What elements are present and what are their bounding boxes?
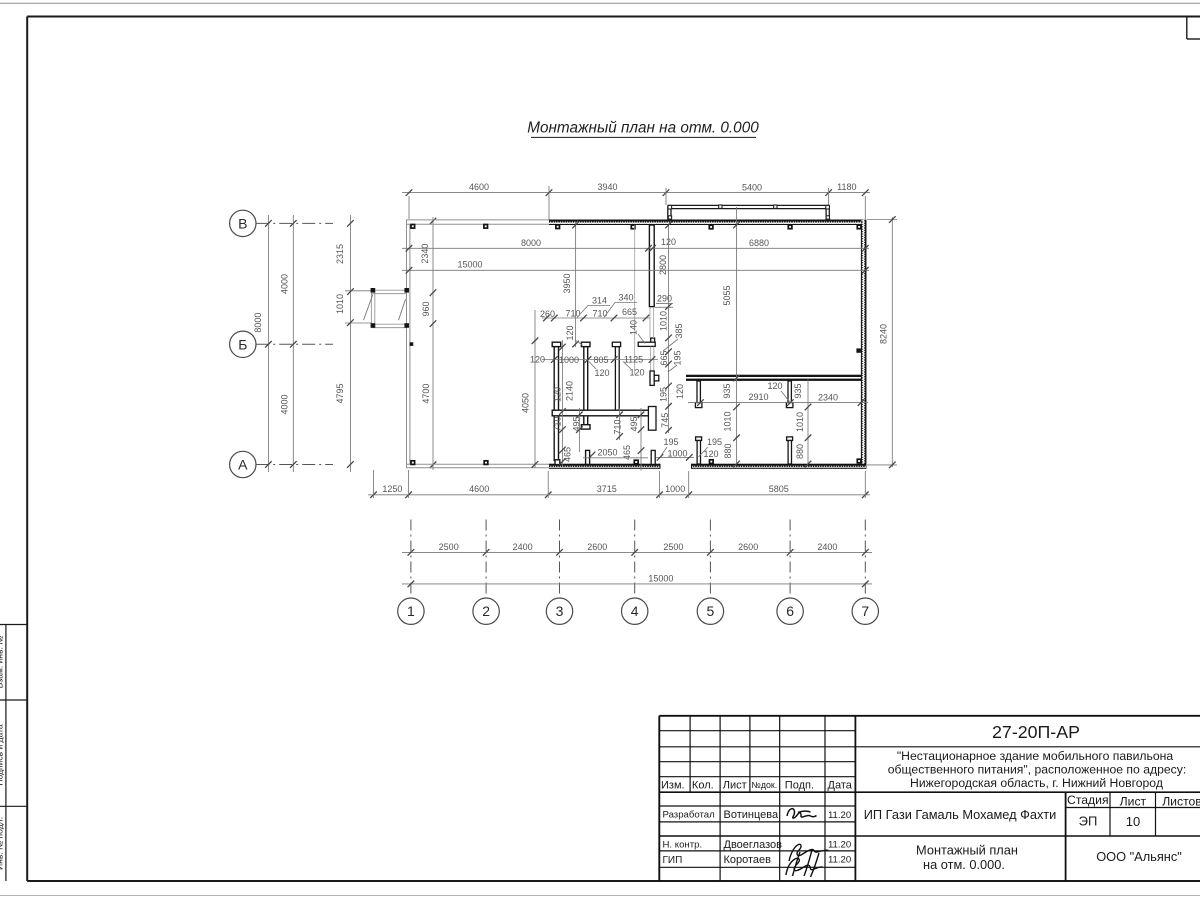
svg-text:10: 10 bbox=[1126, 814, 1140, 829]
svg-text:4600: 4600 bbox=[469, 484, 489, 494]
svg-text:314: 314 bbox=[592, 296, 607, 306]
svg-text:3: 3 bbox=[556, 603, 564, 619]
svg-text:Подпись и дата: Подпись и дата bbox=[0, 724, 5, 785]
svg-text:2910: 2910 bbox=[748, 392, 768, 402]
svg-text:120: 120 bbox=[675, 384, 685, 399]
svg-text:5055: 5055 bbox=[722, 285, 732, 305]
svg-text:7: 7 bbox=[861, 603, 869, 619]
svg-text:935: 935 bbox=[793, 383, 803, 398]
svg-text:2140: 2140 bbox=[565, 381, 575, 401]
svg-text:2315: 2315 bbox=[335, 244, 345, 264]
svg-text:Кол.: Кол. bbox=[692, 779, 714, 791]
svg-text:5805: 5805 bbox=[769, 484, 789, 494]
svg-text:2: 2 bbox=[482, 603, 490, 619]
svg-text:140: 140 bbox=[629, 320, 639, 335]
svg-text:Листов: Листов bbox=[1162, 794, 1200, 808]
svg-text:2500: 2500 bbox=[439, 542, 459, 552]
svg-text:880: 880 bbox=[795, 444, 805, 459]
svg-text:120: 120 bbox=[530, 355, 545, 365]
svg-text:195: 195 bbox=[659, 387, 669, 402]
svg-text:2340: 2340 bbox=[420, 244, 430, 264]
svg-text:Лист: Лист bbox=[723, 779, 747, 791]
svg-text:935: 935 bbox=[722, 383, 732, 398]
svg-text:4050: 4050 bbox=[521, 393, 531, 413]
svg-text:Изм.: Изм. bbox=[661, 779, 685, 791]
svg-text:195: 195 bbox=[673, 350, 683, 365]
svg-text:1010: 1010 bbox=[795, 412, 805, 432]
svg-text:15000: 15000 bbox=[457, 260, 482, 270]
svg-text:2800: 2800 bbox=[658, 255, 668, 275]
svg-text:1010: 1010 bbox=[659, 311, 669, 331]
svg-text:710: 710 bbox=[565, 309, 580, 319]
svg-text:Дата: Дата bbox=[828, 779, 853, 791]
svg-text:195: 195 bbox=[663, 437, 678, 447]
svg-text:Стадия: Стадия bbox=[1067, 793, 1109, 807]
svg-text:А: А bbox=[238, 457, 248, 473]
svg-text:Монтажный план: Монтажный план bbox=[916, 843, 1018, 858]
svg-text:1000: 1000 bbox=[665, 484, 685, 494]
svg-text:5: 5 bbox=[707, 603, 715, 619]
svg-text:№док.: №док. bbox=[751, 780, 777, 790]
svg-text:665: 665 bbox=[659, 350, 669, 365]
svg-text:2600: 2600 bbox=[587, 542, 607, 552]
svg-text:В: В bbox=[238, 216, 247, 232]
svg-text:4000: 4000 bbox=[279, 274, 289, 294]
svg-text:"Нестационарное здание мобильн: "Нестационарное здание мобильного павиль… bbox=[897, 749, 1174, 763]
svg-text:665: 665 bbox=[622, 307, 637, 317]
svg-text:Монтажный план на отм. 0.000: Монтажный план на отм. 0.000 bbox=[527, 120, 759, 137]
svg-text:3950: 3950 bbox=[562, 273, 572, 293]
svg-text:8000: 8000 bbox=[253, 313, 263, 333]
svg-text:290: 290 bbox=[657, 294, 672, 304]
svg-text:465: 465 bbox=[563, 447, 573, 462]
svg-text:1125: 1125 bbox=[624, 355, 643, 365]
svg-text:8000: 8000 bbox=[521, 238, 541, 248]
svg-text:ГИП: ГИП bbox=[663, 855, 683, 866]
svg-text:1: 1 bbox=[407, 603, 415, 619]
svg-text:11.20: 11.20 bbox=[828, 840, 851, 851]
svg-text:Лист: Лист bbox=[1120, 794, 1147, 808]
svg-text:195: 195 bbox=[707, 437, 722, 447]
svg-text:2500: 2500 bbox=[663, 542, 683, 552]
svg-text:Коротаев: Коротаев bbox=[724, 854, 772, 866]
svg-text:960: 960 bbox=[421, 301, 431, 316]
svg-text:Двоеглазов: Двоеглазов bbox=[724, 839, 783, 851]
svg-text:120: 120 bbox=[629, 368, 644, 378]
svg-text:11.20: 11.20 bbox=[828, 855, 851, 866]
svg-text:Нижегородская область, г. Нижн: Нижегородская область, г. Нижний Новгоро… bbox=[910, 776, 1163, 790]
svg-text:4: 4 bbox=[631, 603, 639, 619]
svg-text:120: 120 bbox=[703, 449, 718, 459]
svg-text:710: 710 bbox=[613, 419, 623, 434]
svg-text:495: 495 bbox=[629, 416, 639, 431]
svg-text:4000: 4000 bbox=[279, 394, 289, 414]
svg-text:на отм. 0.000.: на отм. 0.000. bbox=[923, 857, 1005, 872]
svg-text:120: 120 bbox=[767, 381, 782, 391]
svg-text:340: 340 bbox=[618, 293, 633, 303]
svg-text:ООО "Альянс": ООО "Альянс" bbox=[1096, 849, 1182, 864]
svg-text:4795: 4795 bbox=[335, 383, 345, 403]
svg-text:3940: 3940 bbox=[597, 182, 617, 192]
svg-text:Разработал: Разработал bbox=[663, 810, 715, 821]
svg-text:6: 6 bbox=[786, 603, 794, 619]
svg-text:1000: 1000 bbox=[667, 448, 687, 458]
svg-text:1250: 1250 bbox=[382, 484, 402, 494]
svg-text:Инв. № подл.: Инв. № подл. bbox=[0, 817, 5, 870]
svg-text:3715: 3715 bbox=[597, 484, 617, 494]
svg-text:общественного питания", распол: общественного питания", расположенное по… bbox=[888, 763, 1186, 777]
svg-text:4700: 4700 bbox=[421, 384, 431, 404]
svg-text:385: 385 bbox=[674, 323, 684, 338]
svg-text:Взам. инв. №: Взам. инв. № bbox=[0, 636, 5, 689]
svg-text:2050: 2050 bbox=[597, 448, 617, 458]
svg-text:27-20П-АР: 27-20П-АР bbox=[992, 722, 1080, 742]
svg-text:2400: 2400 bbox=[513, 542, 533, 552]
svg-text:1010: 1010 bbox=[723, 411, 733, 431]
svg-text:ЭП: ЭП bbox=[1079, 813, 1098, 828]
svg-text:120: 120 bbox=[594, 368, 609, 378]
svg-text:Подп.: Подп. bbox=[785, 779, 814, 791]
svg-text:120: 120 bbox=[553, 387, 563, 402]
svg-text:1010: 1010 bbox=[335, 294, 345, 314]
svg-text:Н. контр.: Н. контр. bbox=[663, 840, 703, 851]
svg-text:Вотинцева: Вотинцева bbox=[724, 809, 779, 821]
svg-text:ИП Гази Гамаль Мохамед Фахти: ИП Гази Гамаль Мохамед Фахти bbox=[864, 807, 1057, 822]
svg-text:11.20: 11.20 bbox=[828, 810, 851, 821]
svg-text:880: 880 bbox=[723, 443, 733, 458]
svg-text:710: 710 bbox=[592, 309, 607, 319]
svg-text:Б: Б bbox=[238, 337, 247, 353]
svg-text:1180: 1180 bbox=[837, 182, 856, 192]
svg-text:745: 745 bbox=[660, 413, 670, 428]
svg-text:710: 710 bbox=[553, 416, 563, 431]
svg-text:2600: 2600 bbox=[738, 542, 758, 552]
svg-text:4600: 4600 bbox=[469, 182, 489, 192]
svg-text:805: 805 bbox=[593, 355, 608, 365]
svg-text:2340: 2340 bbox=[818, 392, 838, 402]
svg-text:120: 120 bbox=[565, 325, 575, 340]
svg-text:6880: 6880 bbox=[749, 238, 769, 248]
svg-text:8240: 8240 bbox=[879, 324, 889, 344]
svg-text:260: 260 bbox=[540, 309, 555, 319]
svg-text:5400: 5400 bbox=[742, 183, 762, 193]
svg-text:495: 495 bbox=[572, 416, 582, 431]
svg-text:15000: 15000 bbox=[648, 573, 673, 583]
svg-text:2400: 2400 bbox=[817, 542, 837, 552]
